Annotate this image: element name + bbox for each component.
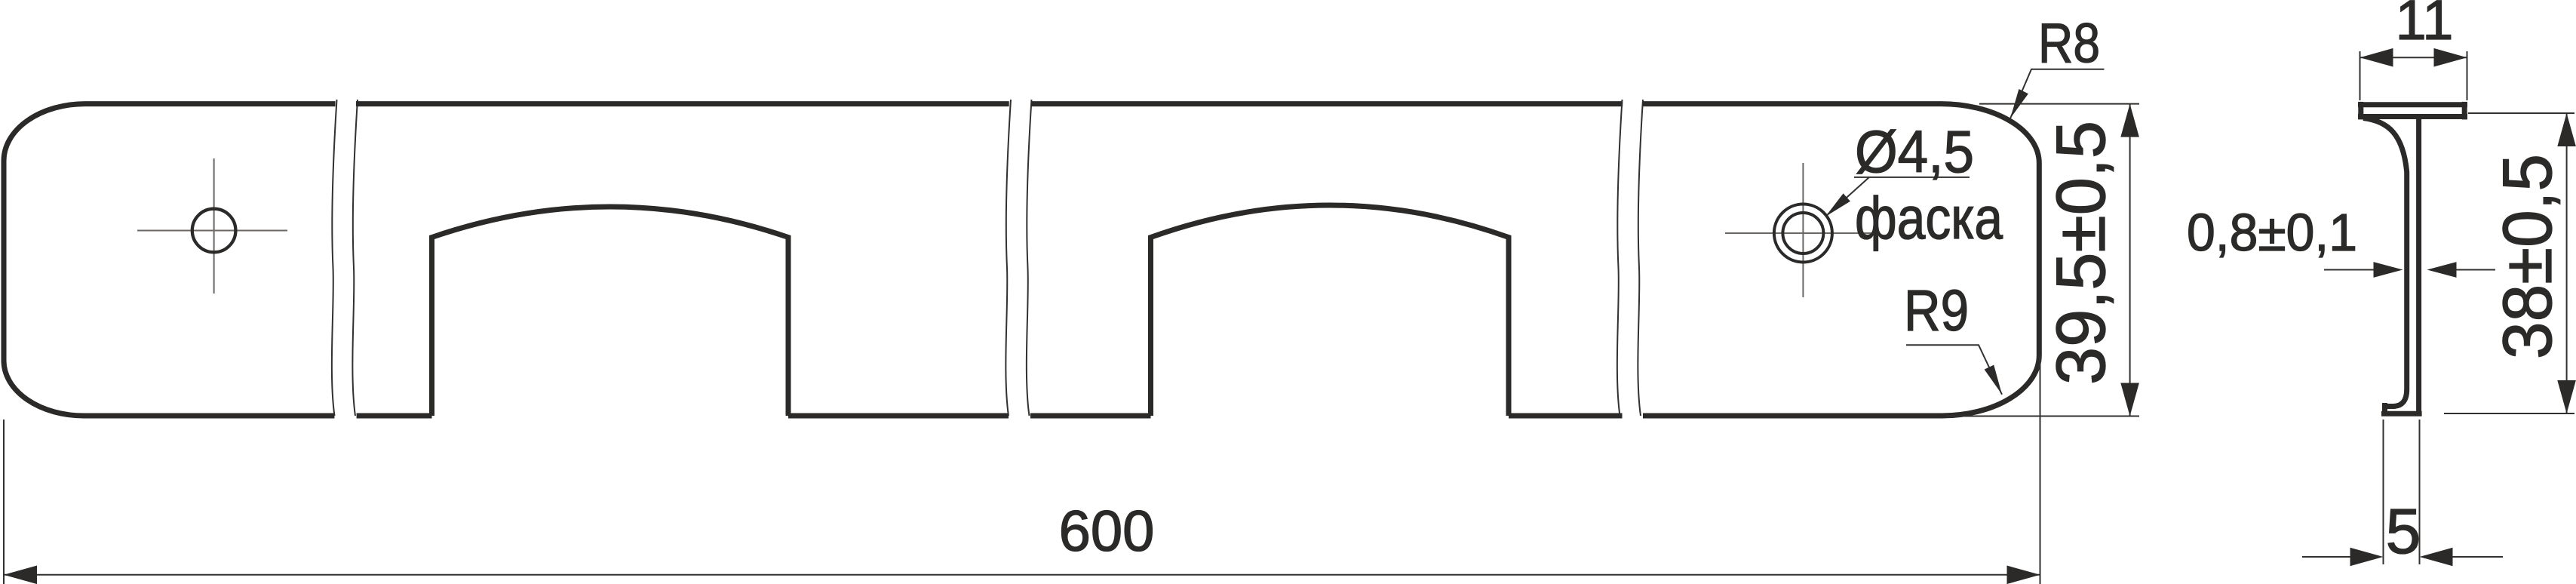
svg-text:39,5±0,5: 39,5±0,5 (2043, 121, 2120, 385)
svg-text:600: 600 (1059, 499, 1155, 564)
svg-text:R8: R8 (2038, 12, 2100, 75)
svg-text:R9: R9 (1904, 278, 1969, 343)
svg-text:0,8±0,1: 0,8±0,1 (2187, 203, 2357, 262)
svg-text:Ø4,5: Ø4,5 (1855, 118, 1974, 185)
svg-text:5: 5 (2386, 496, 2421, 567)
svg-text:фаска: фаска (1855, 184, 2003, 251)
svg-text:11: 11 (2396, 0, 2454, 51)
svg-text:38±0,5: 38±0,5 (2489, 154, 2566, 359)
